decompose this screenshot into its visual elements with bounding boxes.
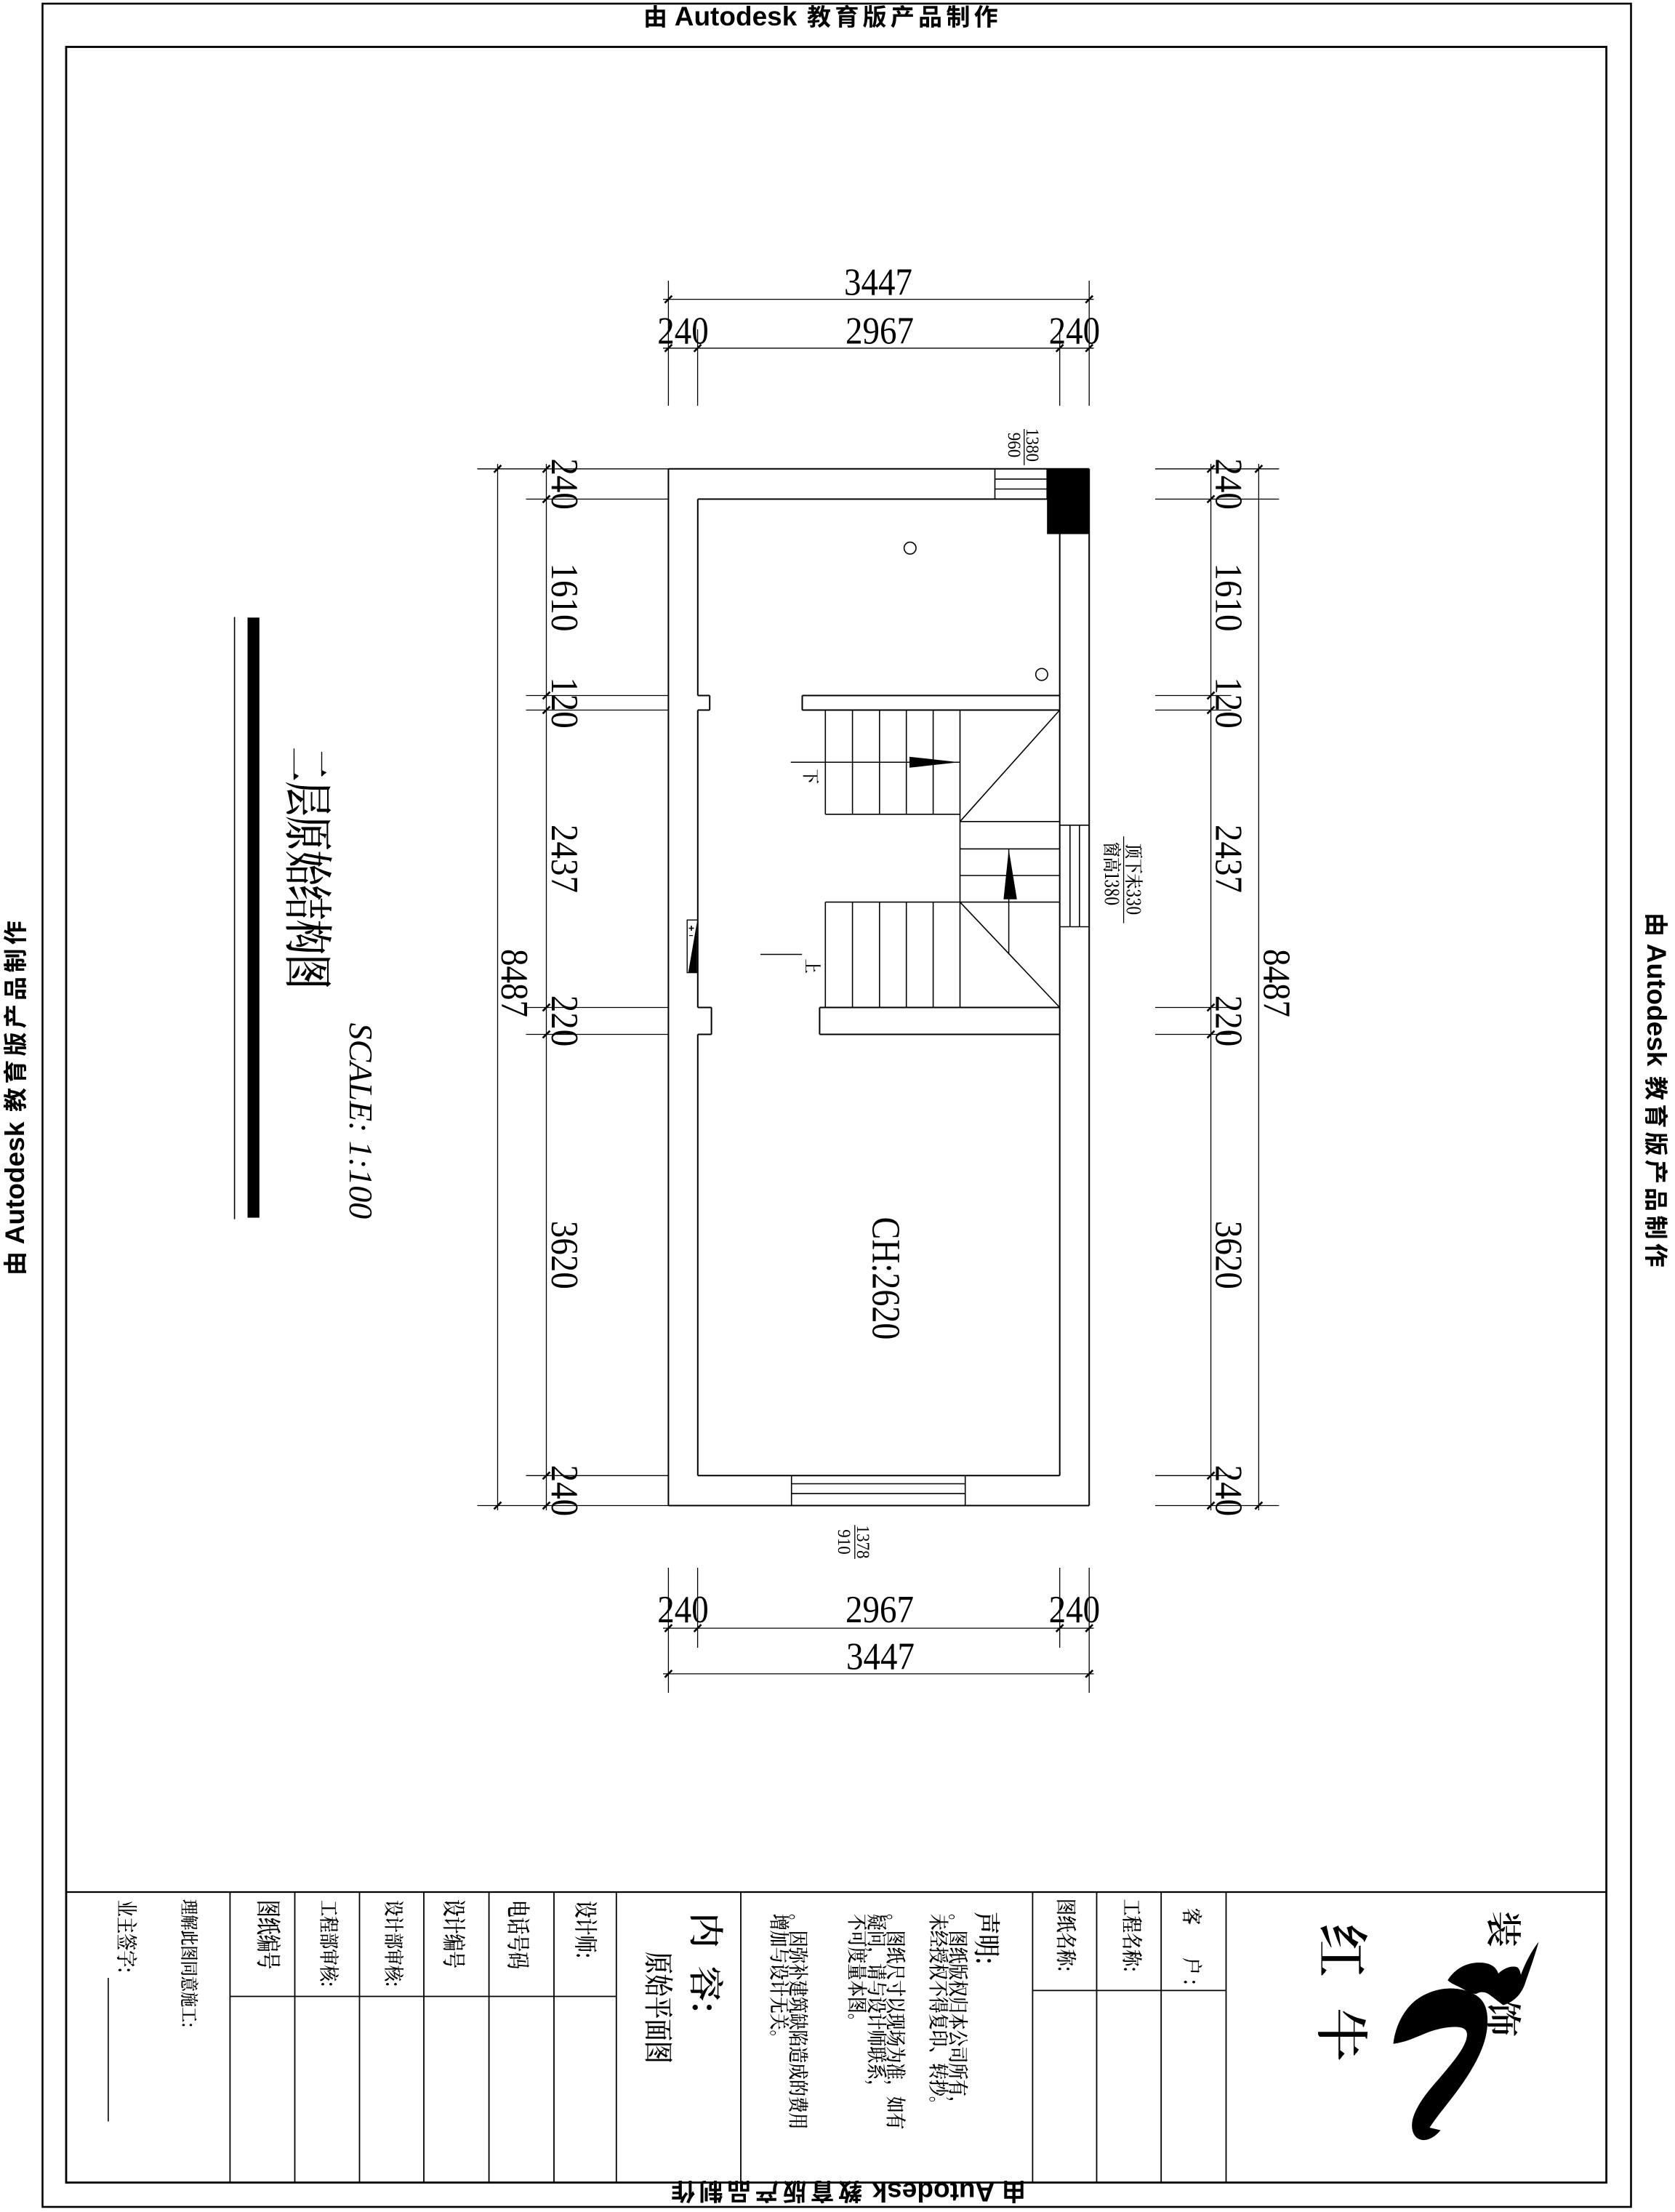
- svg-text:2967: 2967: [845, 310, 914, 352]
- svg-text:3447: 3447: [844, 261, 912, 303]
- svg-text:120: 120: [1208, 677, 1250, 728]
- svg-text:SCALE: 1:100: SCALE: 1:100: [342, 1023, 379, 1219]
- svg-text:240: 240: [657, 310, 708, 352]
- svg-text:Autodesk: Autodesk: [1642, 944, 1671, 1067]
- svg-text:960: 960: [1004, 433, 1024, 457]
- svg-text:8487: 8487: [1256, 949, 1298, 1017]
- svg-text:1610: 1610: [1208, 564, 1250, 632]
- svg-text:1380: 1380: [1022, 428, 1043, 462]
- svg-text:910: 910: [834, 1529, 854, 1554]
- svg-text:220: 220: [543, 995, 585, 1046]
- svg-text:240: 240: [543, 1465, 585, 1516]
- svg-text:240: 240: [1208, 458, 1250, 509]
- svg-text:3620: 3620: [543, 1221, 585, 1289]
- svg-text:3447: 3447: [846, 1635, 915, 1678]
- svg-text:3620: 3620: [1208, 1221, 1250, 1289]
- svg-text:240: 240: [1049, 1589, 1100, 1631]
- svg-text:240: 240: [1049, 310, 1100, 352]
- svg-text:240: 240: [1208, 1465, 1250, 1516]
- svg-text:240: 240: [543, 458, 585, 509]
- svg-text:120: 120: [543, 677, 585, 728]
- svg-text:1378: 1378: [853, 1526, 873, 1559]
- svg-text:2967: 2967: [845, 1589, 914, 1631]
- svg-text:2437: 2437: [543, 825, 585, 893]
- svg-text:CH:2620: CH:2620: [864, 1217, 909, 1340]
- svg-text:1610: 1610: [543, 564, 585, 632]
- svg-text:Autodesk: Autodesk: [872, 2177, 995, 2207]
- svg-text:Autodesk: Autodesk: [675, 1, 798, 31]
- svg-text:240: 240: [657, 1589, 708, 1631]
- svg-text:2437: 2437: [1208, 825, 1250, 893]
- svg-text:220: 220: [1208, 995, 1250, 1046]
- svg-text:Autodesk: Autodesk: [0, 1121, 30, 1244]
